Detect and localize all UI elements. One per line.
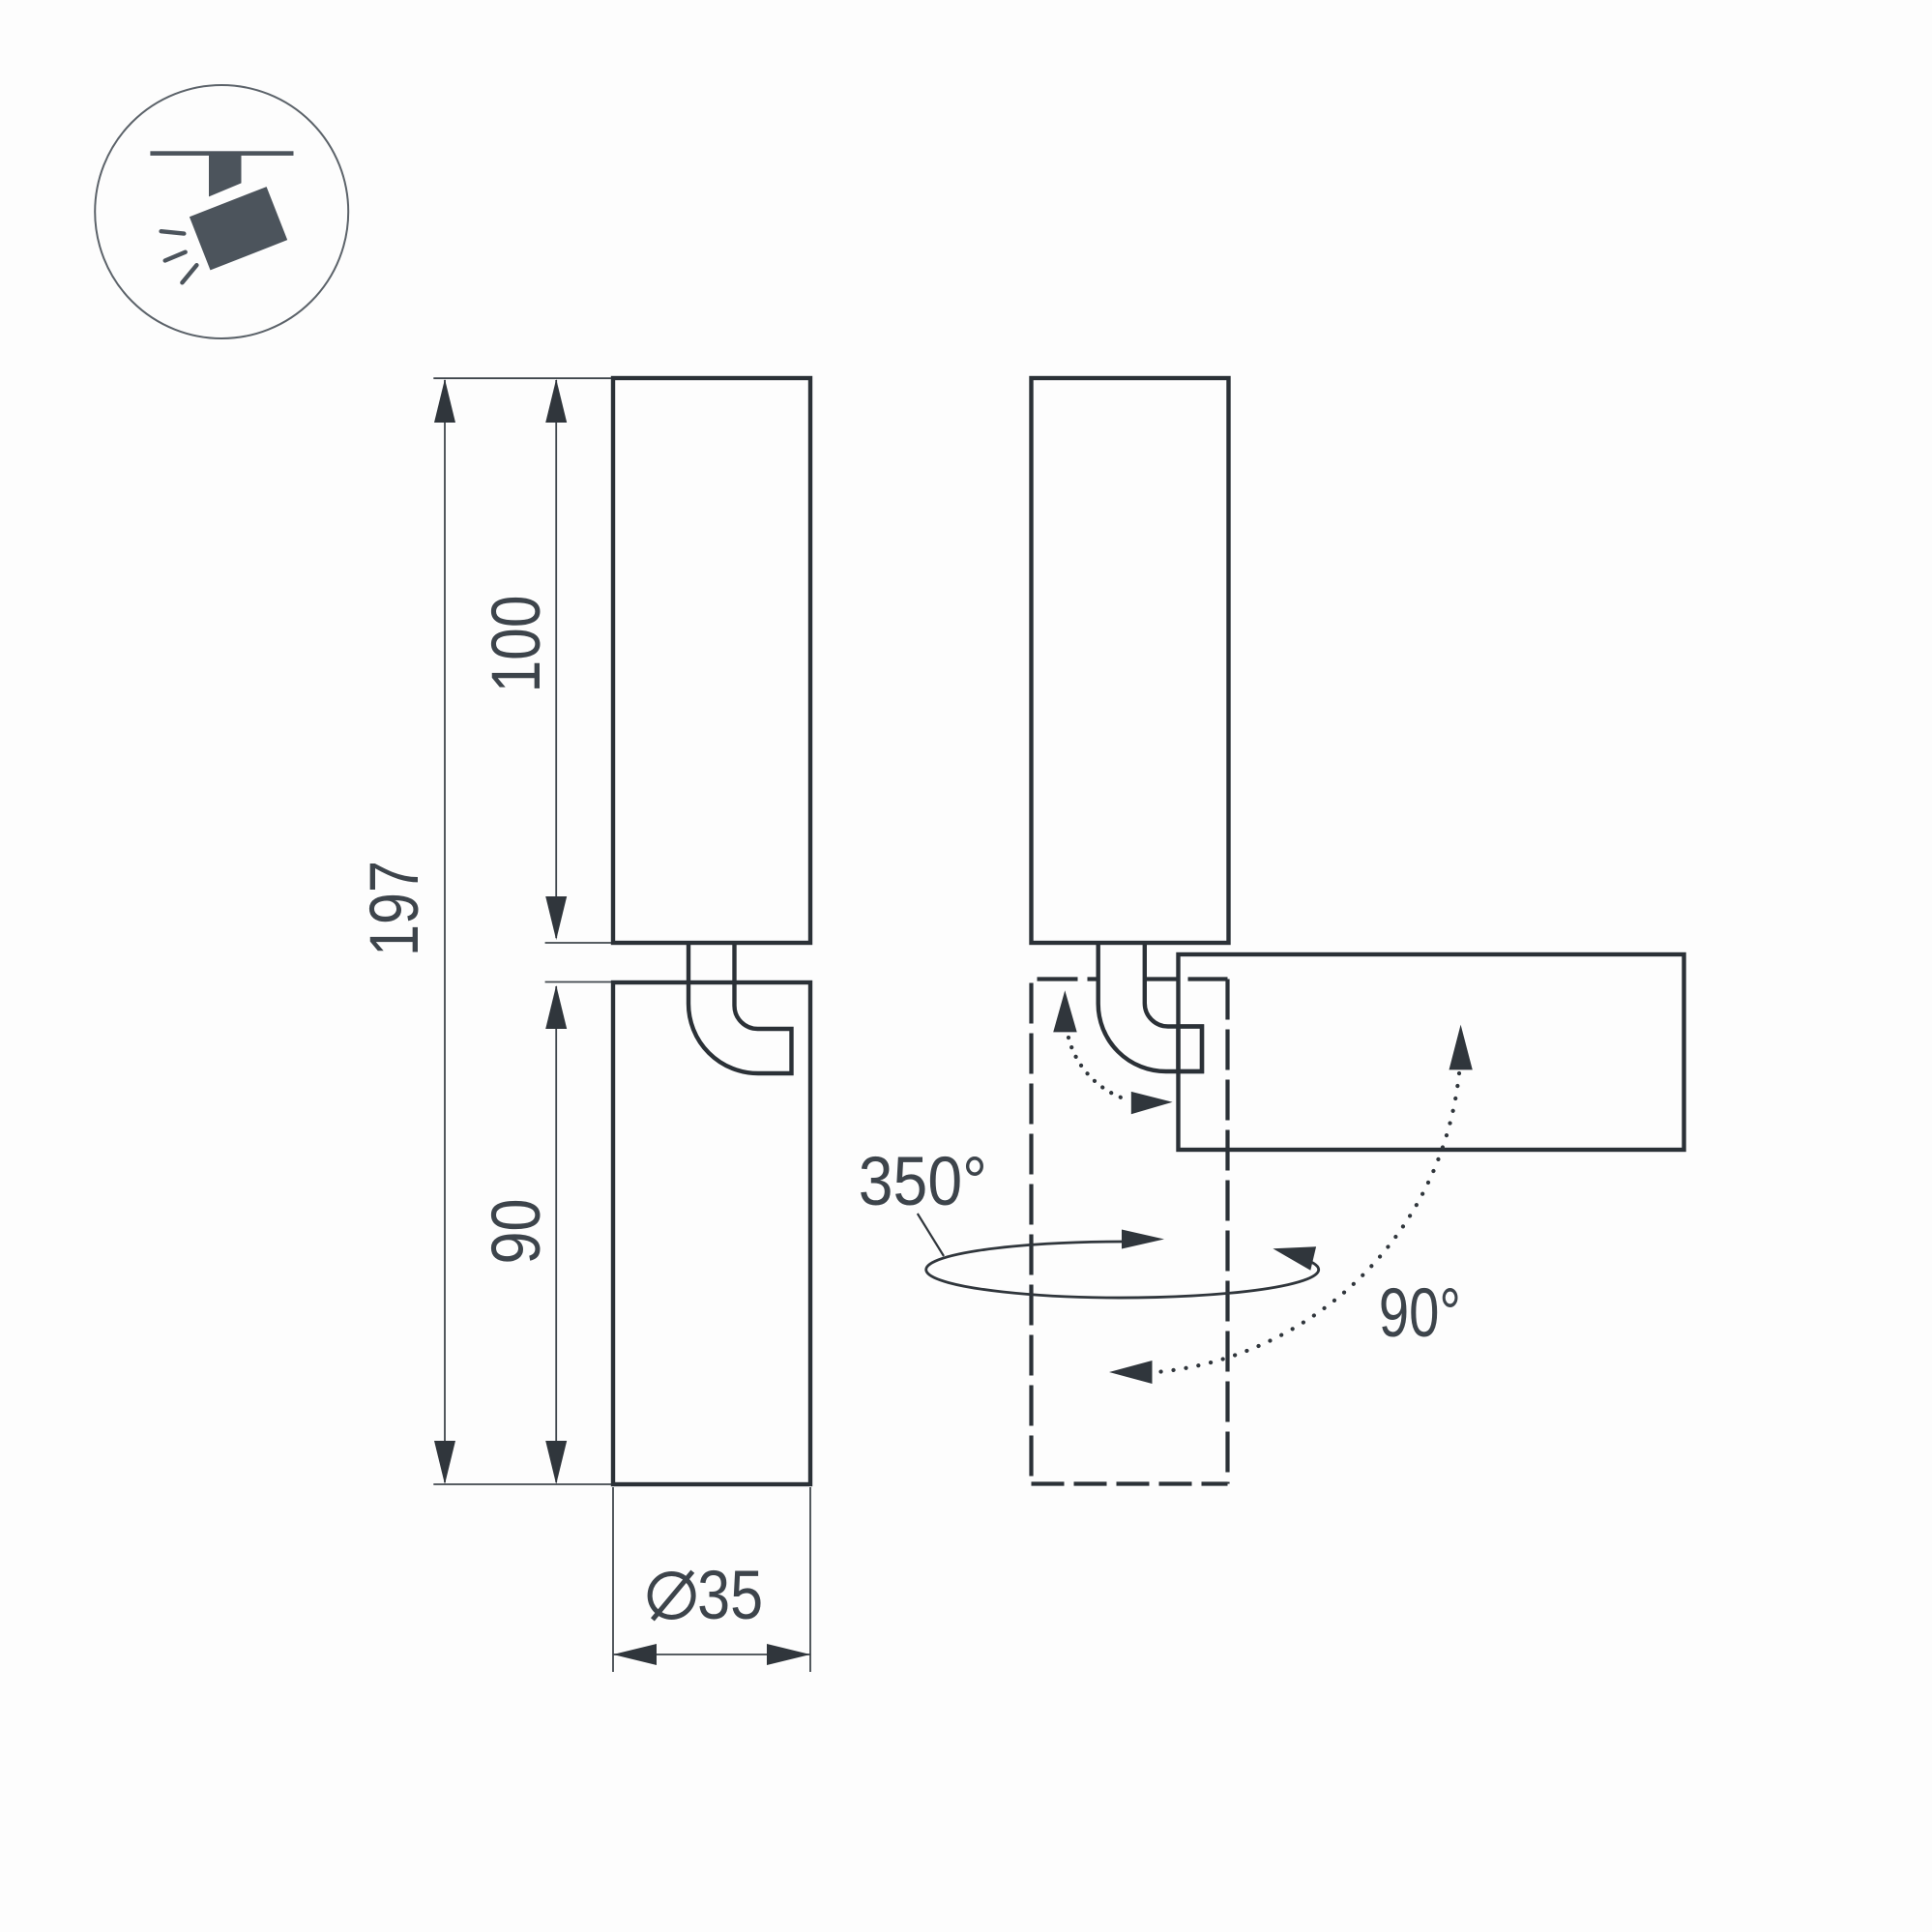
svg-text:197: 197 [357,861,433,956]
svg-text:100: 100 [479,596,555,693]
svg-text:90: 90 [479,1199,555,1265]
svg-text:35: 35 [697,1558,763,1634]
svg-text:90°: 90° [1379,1275,1461,1352]
svg-text:350°: 350° [859,1144,987,1220]
